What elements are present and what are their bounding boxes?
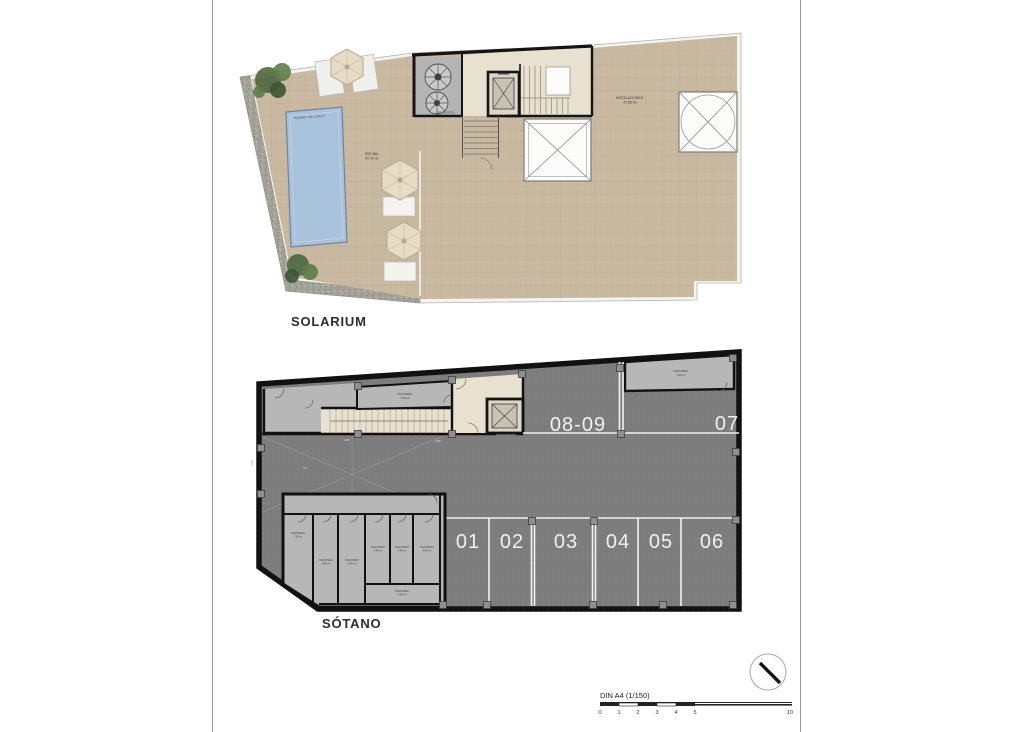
ramp-dim-left: 5.50 (250, 460, 254, 466)
parking-space-label-02: 02 (500, 531, 524, 553)
basement-core (452, 374, 523, 434)
parking-space-label-03: 03 (554, 531, 578, 553)
sotano-title: SÓTANO (322, 616, 381, 631)
sotano-plan: 4.45 5.00 5% 5.50 TRASTERO 7.60 m² (250, 352, 740, 631)
svg-text:3: 3 (655, 710, 658, 716)
elevator-icon (487, 399, 523, 433)
ramp-dim-right: 5.00 (435, 439, 441, 443)
water-tank-icon (425, 64, 451, 90)
svg-text:0: 0 (598, 710, 601, 716)
svg-text:5: 5 (693, 710, 696, 716)
drawing-sheet-viewport: PISCINA 7.50 x 3.00 m PISCINA 42.40 m² (0, 0, 1024, 732)
parking-space-label-08-09: 08-09 (550, 414, 606, 436)
trastero-area: 7.20 m² (676, 373, 686, 377)
svg-text:4: 4 (674, 710, 677, 716)
pool-name: PISCINA (365, 152, 379, 156)
north-indicator (750, 654, 786, 690)
parking-space-label-04: 04 (606, 531, 630, 553)
svg-text:2: 2 (636, 710, 639, 716)
roof-core-rooms (462, 46, 592, 116)
trastero-area: 7.60 m² (400, 396, 410, 400)
installations-area: 47.56 m² (623, 100, 637, 104)
pool-area-label: PISCINA 42.40 m² (365, 152, 380, 160)
parking-space-label-07: 07 (715, 413, 739, 435)
parking-space-label-05: 05 (649, 531, 673, 553)
floor-plan-svg: PISCINA 7.50 x 3.00 m PISCINA 42.40 m² (0, 0, 1024, 732)
scale-label: DIN A4 (1/150) (600, 691, 650, 700)
installations-name: INSTALACIONES (616, 96, 644, 100)
svg-text:1: 1 (617, 710, 620, 716)
trastero-room: TRASTERO 7.60 m² (357, 381, 452, 409)
parking-space-label-01: 01 (456, 531, 480, 553)
parking-space-label-06: 06 (700, 531, 724, 553)
elevator-icon (488, 72, 519, 116)
deposits-label: DEPOSITOS (437, 111, 454, 115)
skylight-shaft (679, 92, 737, 152)
solarium-title: SOLARIUM (291, 314, 367, 329)
pool-area: 42.40 m² (365, 156, 379, 160)
pool: PISCINA 7.50 x 3.00 m (286, 107, 347, 247)
svg-text:10: 10 (787, 710, 793, 716)
solarium-plan: PISCINA 7.50 x 3.00 m PISCINA 42.40 m² (240, 33, 741, 329)
deposits-room: DEPOSITOS (414, 57, 462, 116)
storage-block: TRASTERO7.30 m² TRASTERO5.80 m² TRASTERO… (283, 494, 445, 607)
trastero-room: TRASTERO 7.20 m² (625, 355, 734, 391)
skylight-shaft (524, 119, 591, 181)
ramp-dim-top: 4.45 (344, 438, 350, 442)
ramp-slope-label: 5% (303, 466, 308, 470)
